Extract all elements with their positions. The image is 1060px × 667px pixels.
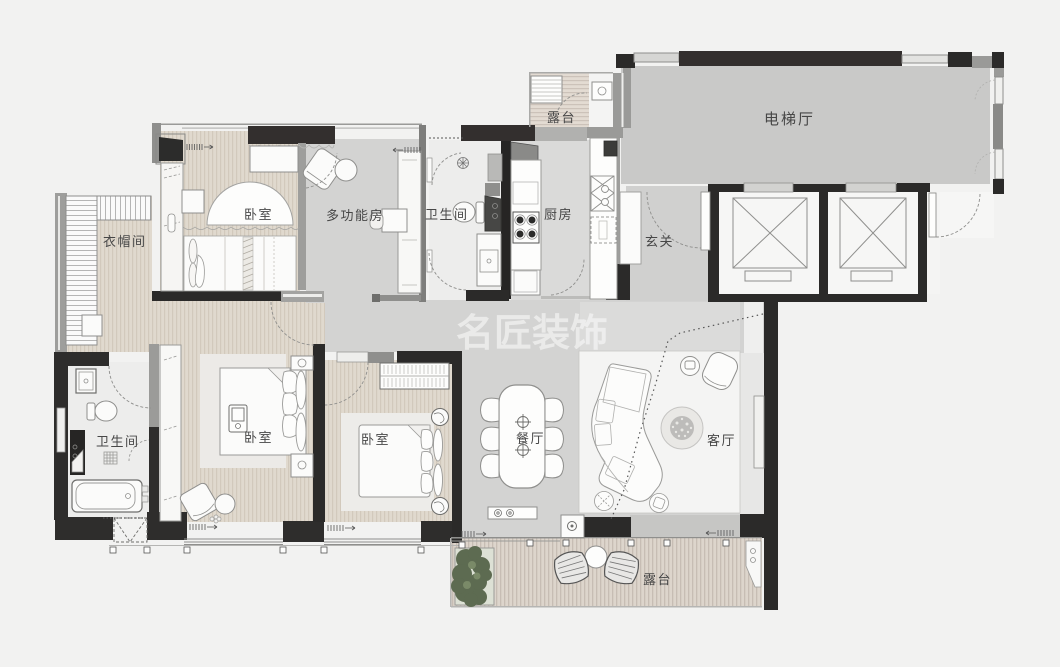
svg-text:卫生间: 卫生间 [96,434,140,449]
svg-text:多功能房: 多功能房 [326,208,384,223]
svg-text:电梯厅: 电梯厅 [764,111,815,128]
svg-text:餐厅: 餐厅 [516,431,545,446]
svg-text:卧室: 卧室 [244,430,273,445]
svg-text:客厅: 客厅 [707,433,736,448]
svg-text:卫生间: 卫生间 [425,207,469,222]
svg-text:卧室: 卧室 [361,432,390,447]
svg-text:衣帽间: 衣帽间 [103,234,147,249]
svg-text:玄关: 玄关 [645,234,674,249]
svg-text:露台: 露台 [547,110,576,125]
svg-text:露台: 露台 [643,572,672,587]
svg-text:名匠装饰: 名匠装饰 [456,313,608,355]
svg-text:厨房: 厨房 [544,207,573,222]
svg-text:卧室: 卧室 [244,207,273,222]
